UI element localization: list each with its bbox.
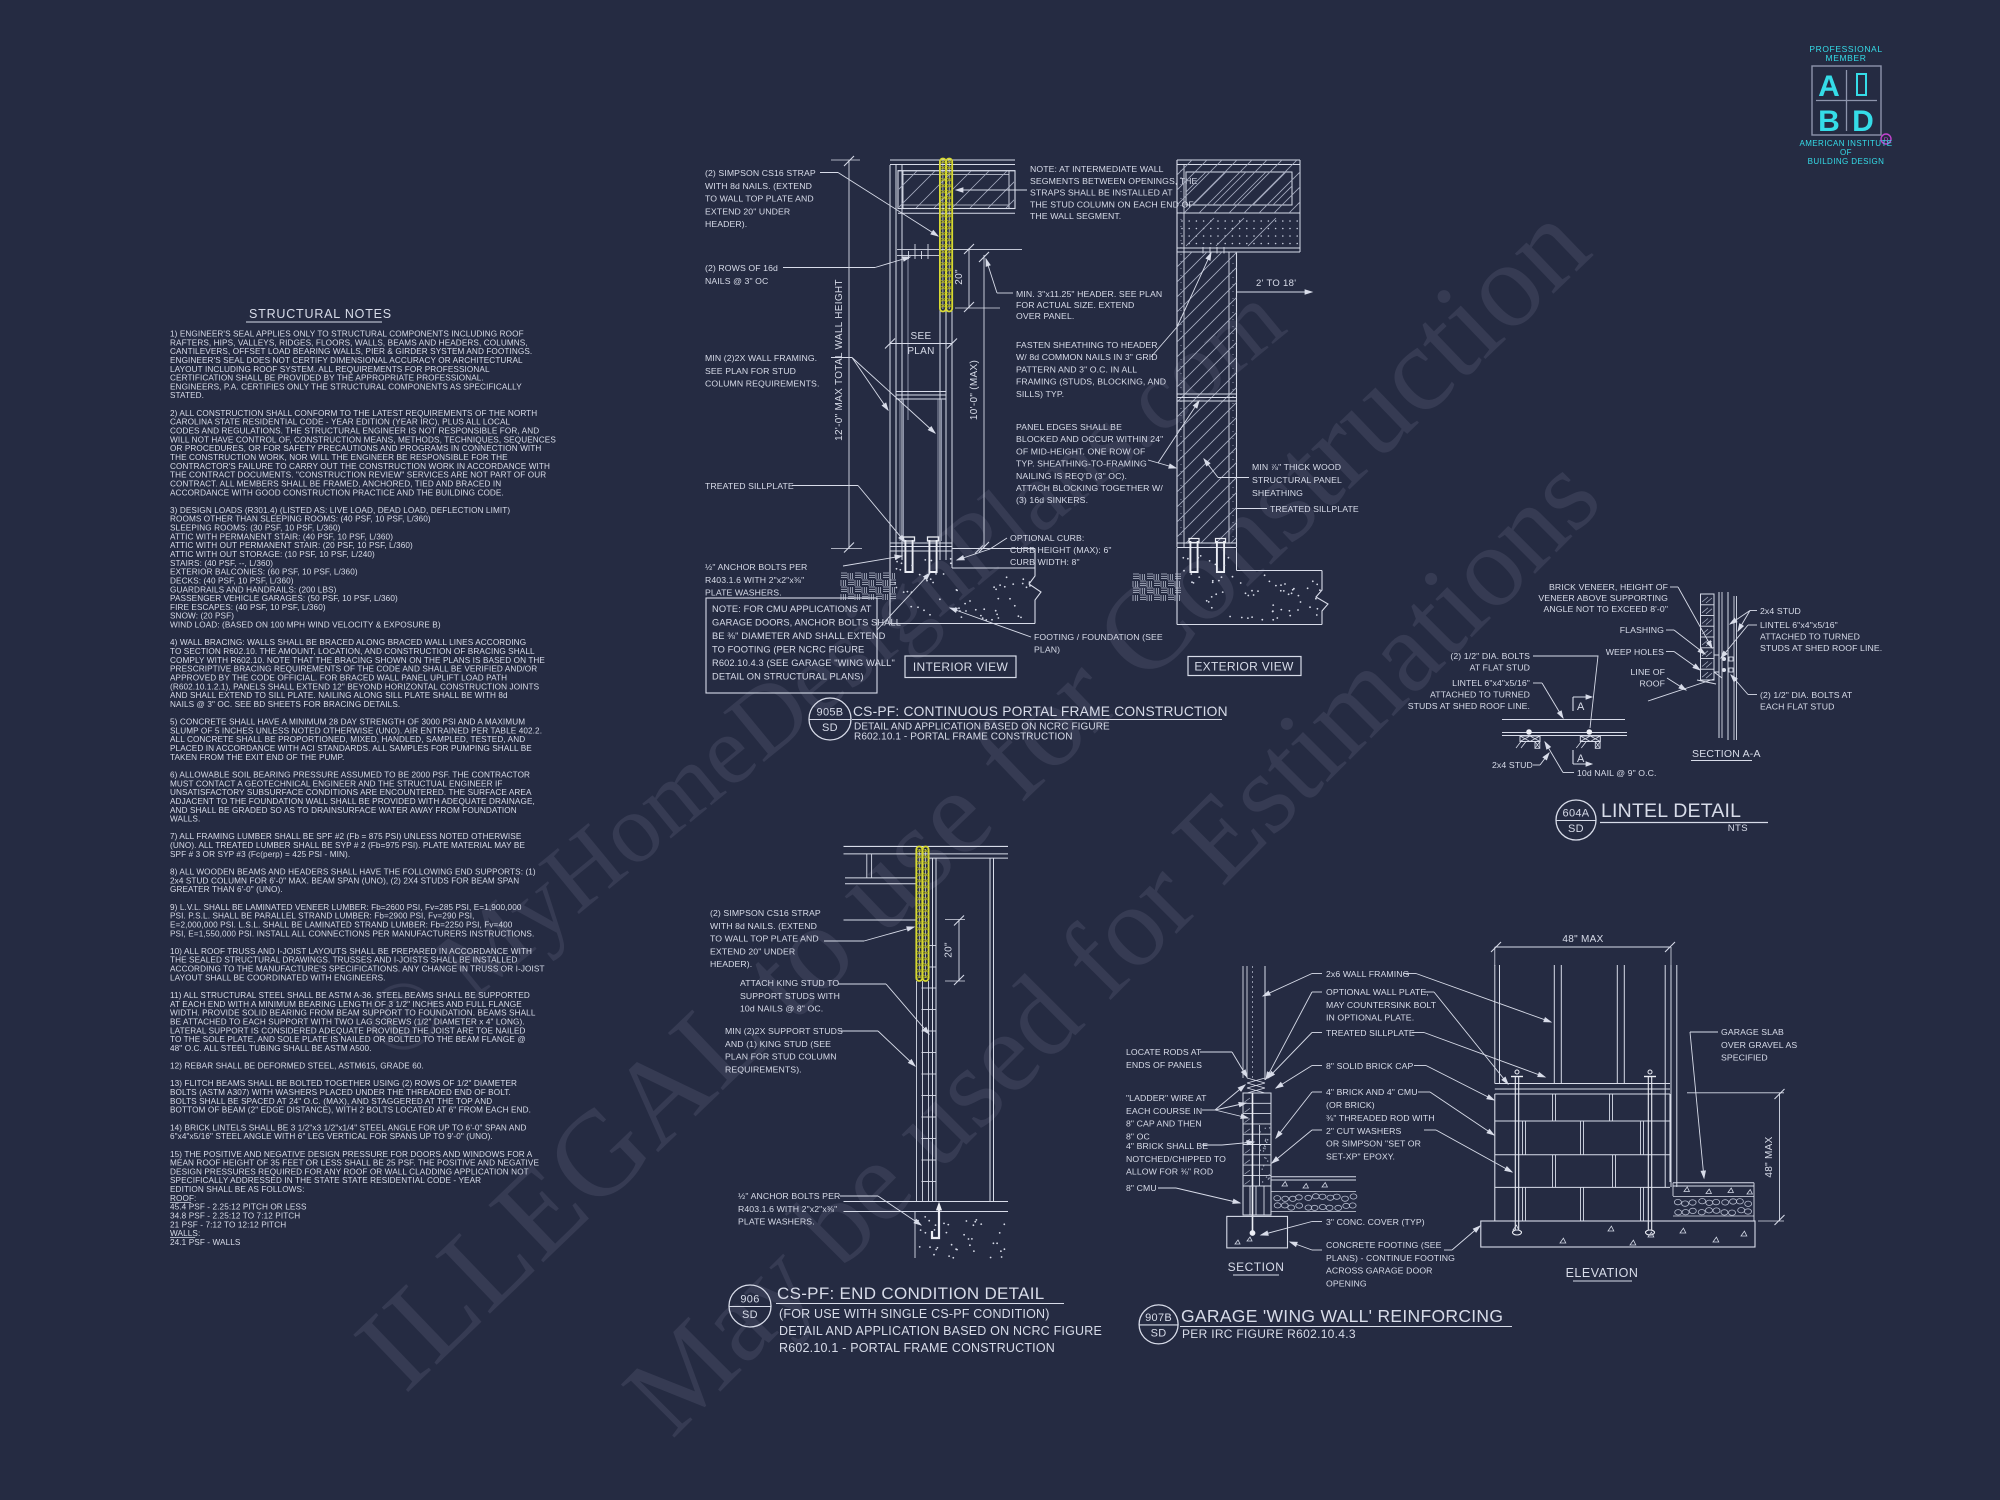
- svg-text:SD: SD: [1151, 1327, 1167, 1339]
- svg-text:MIN (2)2X SUPPORT STUDS: MIN (2)2X SUPPORT STUDS: [725, 1026, 843, 1036]
- svg-text:(R602.10.1.2.1), PANELS SHALL: (R602.10.1.2.1), PANELS SHALL EXTEND 12"…: [170, 682, 540, 691]
- svg-text:TREATED SILLPLATE: TREATED SILLPLATE: [705, 481, 794, 491]
- svg-text:LINE OF: LINE OF: [1631, 667, 1666, 677]
- svg-text:TO THE SOLE PLATE, AND SOLE PL: TO THE SOLE PLATE, AND SOLE PLATE IS NAI…: [170, 1035, 526, 1044]
- svg-text:MIN ⅞" THICK WOOD: MIN ⅞" THICK WOOD: [1252, 462, 1341, 472]
- svg-text:EXTERIOR VIEW: EXTERIOR VIEW: [1194, 660, 1294, 674]
- svg-text:VENEER ABOVE SUPPORTING: VENEER ABOVE SUPPORTING: [1538, 593, 1668, 603]
- svg-text:SD: SD: [822, 722, 838, 734]
- svg-text:LATERAL SUPPORT IS CONSIDERED: LATERAL SUPPORT IS CONSIDERED ADEQUATE P…: [170, 1026, 526, 1035]
- svg-text:2x4 STUD: 2x4 STUD: [1492, 760, 1533, 770]
- svg-text:(OR BRICK): (OR BRICK): [1326, 1100, 1375, 1110]
- svg-text:14) BRICK LINTELS SHALL BE 3 1: 14) BRICK LINTELS SHALL BE 3 1/2"x3 1/2"…: [170, 1123, 526, 1132]
- svg-text:ATTACHED TO TURNED: ATTACHED TO TURNED: [1430, 690, 1530, 700]
- svg-text:PER IRC FIGURE R602.10.4.3: PER IRC FIGURE R602.10.4.3: [1182, 1327, 1356, 1341]
- svg-text:ATTACHED TO TURNED: ATTACHED TO TURNED: [1760, 632, 1860, 642]
- svg-text:PLATE WASHERS.: PLATE WASHERS.: [705, 588, 782, 598]
- svg-text:PANEL EDGES SHALL BE: PANEL EDGES SHALL BE: [1016, 422, 1122, 432]
- svg-text:PRESCRIPTIVE BRACING REQUIREME: PRESCRIPTIVE BRACING REQUIREMENTS OF THE…: [170, 665, 537, 674]
- svg-text:THE WALL SEGMENT.: THE WALL SEGMENT.: [1030, 211, 1121, 221]
- svg-text:(FOR USE WITH SINGLE CS-PF CON: (FOR USE WITH SINGLE CS-PF CONDITION): [779, 1307, 1050, 1321]
- svg-text:GARAGE SLAB: GARAGE SLAB: [1721, 1027, 1784, 1037]
- svg-text:ENDS OF PANELS: ENDS OF PANELS: [1126, 1060, 1202, 1070]
- svg-text:TO FOOTING (PER NCRC FIGURE: TO FOOTING (PER NCRC FIGURE: [712, 645, 864, 655]
- svg-text:OR PROCEDURES, OR FOR SAFETY P: OR PROCEDURES, OR FOR SAFETY PRECAUTIONS…: [170, 444, 541, 453]
- svg-text:GARAGE 'WING WALL' REINFORCING: GARAGE 'WING WALL' REINFORCING: [1181, 1306, 1503, 1326]
- svg-text:604A: 604A: [1563, 808, 1590, 820]
- svg-text:FIRE ESCAPES: (40 PSF, 10 PSF,: FIRE ESCAPES: (40 PSF, 10 PSF, L/360): [170, 603, 326, 612]
- svg-text:WILL NOT HAVE CONTROL OF, CONS: WILL NOT HAVE CONTROL OF, CONSTRUCTION M…: [170, 435, 556, 444]
- svg-text:OF: OF: [1840, 148, 1852, 157]
- svg-text:SD: SD: [742, 1309, 758, 1321]
- svg-text:ACROSS GARAGE DOOR: ACROSS GARAGE DOOR: [1326, 1266, 1433, 1276]
- svg-text:STUDS AT SHED ROOF LINE.: STUDS AT SHED ROOF LINE.: [1760, 643, 1882, 653]
- svg-text:20": 20": [954, 269, 965, 285]
- svg-text:2" CUT WASHERS: 2" CUT WASHERS: [1326, 1126, 1402, 1136]
- svg-text:11) ALL STRUCTURAL STEEL SHALL: 11) ALL STRUCTURAL STEEL SHALL BE ASTM A…: [170, 991, 530, 1000]
- svg-text:NTS: NTS: [1728, 823, 1748, 834]
- svg-text:STRAPS SHALL BE INSTALLED AT: STRAPS SHALL BE INSTALLED AT: [1030, 188, 1173, 198]
- svg-text:MAY COUNTERSINK BOLT: MAY COUNTERSINK BOLT: [1326, 1000, 1437, 1010]
- svg-text:CURB HEIGHT (MAX): 6": CURB HEIGHT (MAX): 6": [1010, 545, 1112, 555]
- svg-text:8" SOLID BRICK CAP: 8" SOLID BRICK CAP: [1326, 1061, 1414, 1071]
- svg-text:SLUMP OF 5 INCHES UNLESS NOTED: SLUMP OF 5 INCHES UNLESS NOTED OTHERWISE…: [170, 726, 542, 735]
- svg-text:PLANS) - CONTINUE FOOTING: PLANS) - CONTINUE FOOTING: [1326, 1253, 1455, 1263]
- svg-text:12) REBAR SHALL BE DEFORMED ST: 12) REBAR SHALL BE DEFORMED STEEL, ASTM6…: [170, 1062, 424, 1071]
- svg-text:½" ANCHOR BOLTS PER: ½" ANCHOR BOLTS PER: [705, 562, 807, 572]
- svg-text:PLACED IN ACCORDANCE WITH ACI: PLACED IN ACCORDANCE WITH ACI STANDARDS.…: [170, 744, 532, 753]
- svg-text:2) ALL CONSTRUCTION SHALL CONF: 2) ALL CONSTRUCTION SHALL CONFORM TO THE…: [170, 409, 537, 418]
- svg-text:WITH 8d NAILS. (EXTEND: WITH 8d NAILS. (EXTEND: [710, 921, 817, 931]
- svg-text:ATTIC WITH OUT STORAGE: (10 PS: ATTIC WITH OUT STORAGE: (10 PSF, 10 PSF,…: [170, 550, 375, 559]
- svg-text:SPECIFICALLY ADDRESSED IN THE: SPECIFICALLY ADDRESSED IN THE STATE STAT…: [170, 1176, 481, 1185]
- svg-text:ATTACH BLOCKING TOGETHER W/: ATTACH BLOCKING TOGETHER W/: [1016, 483, 1163, 493]
- svg-text:8" CAP AND THEN: 8" CAP AND THEN: [1126, 1119, 1202, 1129]
- svg-text:TREATED SILLPLATE: TREATED SILLPLATE: [1270, 504, 1359, 514]
- svg-text:WITH 8d NAILS. (EXTEND: WITH 8d NAILS. (EXTEND: [705, 181, 812, 191]
- svg-text:DETAIL AND APPLICATION BASED O: DETAIL AND APPLICATION BASED ON NCRC FIG…: [779, 1324, 1102, 1338]
- svg-text:TO SECTION R602.10. THE AMOUNT: TO SECTION R602.10. THE AMOUNT, LOCATION…: [170, 647, 535, 656]
- svg-text:WALLS:: WALLS:: [170, 1229, 200, 1238]
- svg-text:SNOW: (20 PSF): SNOW: (20 PSF): [170, 612, 234, 621]
- svg-text:10d NAIL @ 9" O.C.: 10d NAIL @ 9" O.C.: [1577, 768, 1657, 778]
- svg-text:STAIRS: (40 PSF, --, L/360): STAIRS: (40 PSF, --, L/360): [170, 559, 273, 568]
- svg-text:ENGINEERS, P.A. CERTIFIES ONLY: ENGINEERS, P.A. CERTIFIES ONLY THE STRUC…: [170, 382, 522, 391]
- svg-text:BUILDING DESIGN: BUILDING DESIGN: [1808, 157, 1885, 166]
- svg-text:SPECIFIED: SPECIFIED: [1721, 1053, 1768, 1063]
- svg-text:B: B: [1818, 105, 1840, 138]
- svg-text:ALL CONCRETE SHALL BE PROPORTI: ALL CONCRETE SHALL BE PROPORTIONED, MIXE…: [170, 735, 525, 744]
- svg-text:DETAIL ON STRUCTURAL PLANS): DETAIL ON STRUCTURAL PLANS): [712, 672, 864, 682]
- svg-text:SLEEPING ROOMS: (30 PSF, 10 PS: SLEEPING ROOMS: (30 PSF, 10 PSF, L/360): [170, 524, 341, 533]
- svg-text:48" MAX: 48" MAX: [1764, 1136, 1775, 1177]
- svg-text:DECKS: (40 PSF, 10 PSF, L/360): DECKS: (40 PSF, 10 PSF, L/360): [170, 577, 294, 586]
- svg-text:COLUMN REQUIREMENTS.: COLUMN REQUIREMENTS.: [705, 379, 819, 389]
- svg-text:OVER GRAVEL AS: OVER GRAVEL AS: [1721, 1040, 1797, 1050]
- svg-text:3) DESIGN LOADS (R301.4) (LIST: 3) DESIGN LOADS (R301.4) (LISTED AS: LIV…: [170, 506, 510, 515]
- svg-text:PASSENGER VEHICLE GARAGES: (50: PASSENGER VEHICLE GARAGES: (50 PSF, 10 P…: [170, 594, 398, 603]
- svg-text:34.8 PSF - 2.25:12 TO 7:12 PIT: 34.8 PSF - 2.25:12 TO 7:12 PITCH: [170, 1212, 300, 1221]
- svg-text:PSI. P.S.L. SHALL BE PARALLEL: PSI. P.S.L. SHALL BE PARALLEL STRAND LUM…: [170, 912, 475, 921]
- svg-text:CANTILEVERS, OFFSET LOAD BEARI: CANTILEVERS, OFFSET LOAD BEARING WALLS, …: [170, 347, 532, 356]
- svg-text:SD: SD: [1568, 823, 1584, 835]
- svg-text:ATTACH KING STUD TO: ATTACH KING STUD TO: [740, 978, 839, 988]
- svg-text:TO WALL TOP PLATE AND: TO WALL TOP PLATE AND: [710, 934, 819, 944]
- svg-text:6"x4"x5/16" STEEL ANGLE WITH 6: 6"x4"x5/16" STEEL ANGLE WITH 6" LEG VERT…: [170, 1132, 493, 1141]
- svg-text:12'-0" MAX TOTAL WALL HEIGHT: 12'-0" MAX TOTAL WALL HEIGHT: [834, 279, 845, 441]
- svg-text:OF MID-HEIGHT. ONE ROW OF: OF MID-HEIGHT. ONE ROW OF: [1016, 446, 1145, 456]
- svg-text:2x4 STUD COLUMN FOR 6'-0" MAX.: 2x4 STUD COLUMN FOR 6'-0" MAX. BEAM SPAN…: [170, 876, 519, 885]
- svg-text:½" ANCHOR BOLTS PER: ½" ANCHOR BOLTS PER: [738, 1191, 840, 1201]
- svg-text:907B: 907B: [1145, 1312, 1172, 1324]
- svg-text:AND SHALL EXTEND TO SILL PLATE: AND SHALL EXTEND TO SILL PLATE. NAILING …: [170, 691, 508, 700]
- svg-text:CONCRETE FOOTING (SEE: CONCRETE FOOTING (SEE: [1326, 1240, 1442, 1250]
- svg-text:ADJACENT TO THE FOUNDATION WAL: ADJACENT TO THE FOUNDATION WALL SHALL BE…: [170, 797, 535, 806]
- svg-text:ROOF:: ROOF:: [170, 1194, 196, 1203]
- svg-text:"LADDER" WIRE AT: "LADDER" WIRE AT: [1126, 1093, 1207, 1103]
- svg-text:4" BRICK SHALL BE: 4" BRICK SHALL BE: [1126, 1141, 1208, 1151]
- svg-text:AT EACH END WITH A MINIMUM BEA: AT EACH END WITH A MINIMUM BEARING LENGT…: [170, 1000, 522, 1009]
- svg-text:R602.10.1 - PORTAL FRAME CONST: R602.10.1 - PORTAL FRAME CONSTRUCTION: [779, 1341, 1055, 1355]
- svg-text:8" CMU: 8" CMU: [1126, 1183, 1157, 1193]
- svg-text:5) CONCRETE SHALL HAVE A MINIM: 5) CONCRETE SHALL HAVE A MINIMUM 28 DAY …: [170, 718, 525, 727]
- svg-text:CS-PF: END CONDITION DETAIL: CS-PF: END CONDITION DETAIL: [777, 1284, 1045, 1303]
- svg-text:48" MAX: 48" MAX: [1562, 934, 1603, 945]
- svg-text:STATED.: STATED.: [170, 391, 204, 400]
- svg-text:EACH FLAT STUD: EACH FLAT STUD: [1760, 702, 1834, 712]
- svg-text:⅜" THREADED ROD WITH: ⅜" THREADED ROD WITH: [1326, 1113, 1435, 1123]
- svg-text:STUDS AT SHED ROOF LINE.: STUDS AT SHED ROOF LINE.: [1408, 701, 1530, 711]
- svg-text:LINTEL 6"x4"x5/16": LINTEL 6"x4"x5/16": [1452, 678, 1530, 688]
- svg-text:ROOMS OTHER THAN SLEEPING ROOM: ROOMS OTHER THAN SLEEPING ROOMS: (40 PSF…: [170, 515, 431, 524]
- svg-text:SECTION A-A: SECTION A-A: [1692, 748, 1761, 760]
- svg-text:CAROLINA STATE RESIDENTIAL COD: CAROLINA STATE RESIDENTIAL CODE - YEAR E…: [170, 418, 511, 427]
- svg-text:CODES AND REGULATIONS. THE STR: CODES AND REGULATIONS. THE STRUCTURAL EN…: [170, 427, 539, 436]
- svg-text:8) ALL WOODEN BEAMS AND HEADER: 8) ALL WOODEN BEAMS AND HEADERS SHALL HA…: [170, 868, 536, 877]
- svg-text:SUPPORT STUDS WITH: SUPPORT STUDS WITH: [740, 991, 840, 1001]
- svg-text:REQUIREMENTS).: REQUIREMENTS).: [725, 1064, 802, 1074]
- svg-text:20": 20": [944, 942, 955, 958]
- svg-text:AT FLAT STUD: AT FLAT STUD: [1470, 663, 1530, 673]
- svg-text:LINTEL DETAIL: LINTEL DETAIL: [1601, 800, 1741, 822]
- svg-text:SEGMENTS BETWEEN OPENINGS, THE: SEGMENTS BETWEEN OPENINGS, THE: [1030, 176, 1198, 186]
- svg-text:OR SIMPSON "SET OR: OR SIMPSON "SET OR: [1326, 1139, 1421, 1149]
- svg-text:(3) 16d SINKERS.: (3) 16d SINKERS.: [1016, 495, 1088, 505]
- svg-text:PLAN): PLAN): [1034, 645, 1060, 655]
- svg-text:PSI, E=1,550,000 PSI. INSTALL: PSI, E=1,550,000 PSI. INSTALL ALL CONNEC…: [170, 929, 534, 938]
- svg-text:MIN. 3"x11.25" HEADER. SEE PLA: MIN. 3"x11.25" HEADER. SEE PLAN: [1016, 289, 1162, 299]
- svg-text:CURB WIDTH: 8": CURB WIDTH: 8": [1010, 557, 1080, 567]
- svg-text:NOTE: AT INTERMEDIATE WALL: NOTE: AT INTERMEDIATE WALL: [1030, 164, 1164, 174]
- svg-text:NAILS @ 3" OC. SEE BD SHEETS F: NAILS @ 3" OC. SEE BD SHEETS FOR BRACING…: [170, 700, 400, 709]
- svg-text:OVER PANEL.: OVER PANEL.: [1016, 311, 1074, 321]
- svg-text:ACCORDING TO THE MANUFACTURE'S: ACCORDING TO THE MANUFACTURE'S SPECIFICA…: [170, 965, 545, 974]
- svg-text:R403.1.6 WITH 2"x2"x⅜": R403.1.6 WITH 2"x2"x⅜": [705, 575, 804, 585]
- svg-text:SILLS) TYP.: SILLS) TYP.: [1016, 389, 1064, 399]
- svg-text:IN OPTIONAL PLATE.: IN OPTIONAL PLATE.: [1326, 1013, 1414, 1023]
- svg-text:(UNO). ALL TREATED LUMBER SHAL: (UNO). ALL TREATED LUMBER SHALL BE SYP #…: [170, 841, 525, 850]
- svg-text:(2) 1/2" DIA. BOLTS AT: (2) 1/2" DIA. BOLTS AT: [1760, 690, 1853, 700]
- svg-text:9) L.V.L. SHALL BE LAMINATED: 9) L.V.L. SHALL BE LAMINATED VENEER LUMB…: [170, 903, 522, 912]
- svg-text:FOOTING / FOUNDATION (SEE: FOOTING / FOUNDATION (SEE: [1034, 632, 1163, 642]
- svg-text:EXTEND 20" UNDER: EXTEND 20" UNDER: [710, 946, 795, 956]
- svg-text:(2) ROWS OF 16d: (2) ROWS OF 16d: [705, 263, 778, 273]
- svg-text:4) WALL BRACING: WALLS SHALL: 4) WALL BRACING: WALLS SHALL BE BRACED A…: [170, 638, 526, 647]
- svg-text:1) ENGINEER'S SEAL APPLIES ONL: 1) ENGINEER'S SEAL APPLIES ONLY TO STRUC…: [170, 330, 524, 339]
- svg-text:R403.1.6 WITH 2"x2"x⅜": R403.1.6 WITH 2"x2"x⅜": [738, 1204, 837, 1214]
- svg-text:15) THE POSITIVE AND NEGATIVE: 15) THE POSITIVE AND NEGATIVE DESIGN PRE…: [170, 1150, 533, 1159]
- svg-text:FASTEN SHEATHING TO HEADER: FASTEN SHEATHING TO HEADER: [1016, 340, 1158, 350]
- svg-text:LINTEL 6"x4"x5/16": LINTEL 6"x4"x5/16": [1760, 620, 1838, 630]
- svg-text:WIND LOAD: (BASED ON 100 MPH W: WIND LOAD: (BASED ON 100 MPH WIND VELOCI…: [170, 621, 441, 630]
- svg-text:NAILING IS REQ'D (3" OC).: NAILING IS REQ'D (3" OC).: [1016, 471, 1127, 481]
- svg-text:OPENING: OPENING: [1326, 1278, 1367, 1288]
- svg-text:NAILS @ 3" OC: NAILS @ 3" OC: [705, 276, 768, 286]
- svg-text:PLAN FOR STUD COLUMN: PLAN FOR STUD COLUMN: [725, 1052, 837, 1062]
- svg-text:CERTIFICATION SHALL BE PROVIDE: CERTIFICATION SHALL BE PROVIDED BY THE A…: [170, 374, 484, 383]
- svg-text:24.1 PSF - WALLS: 24.1 PSF - WALLS: [170, 1238, 241, 1247]
- svg-text:STRUCTURAL PANEL: STRUCTURAL PANEL: [1252, 475, 1342, 485]
- svg-text:THE STUD COLUMN ON EACH END OF: THE STUD COLUMN ON EACH END OF: [1030, 199, 1194, 209]
- svg-text:CONTRACTOR'S FAILURE TO CARRY: CONTRACTOR'S FAILURE TO CARRY OUT THE CO…: [170, 462, 550, 471]
- svg-text:BLOCKED AND OCCUR WITHIN 24": BLOCKED AND OCCUR WITHIN 24": [1016, 434, 1163, 444]
- svg-text:45.4 PSF - 2.25:12 PITCH OR LE: 45.4 PSF - 2.25:12 PITCH OR LESS: [170, 1203, 307, 1212]
- svg-text:48" O.C. ALL STEEL TUBING SHAL: 48" O.C. ALL STEEL TUBING SHALL BE ASTM …: [170, 1044, 372, 1053]
- svg-text:ELEVATION: ELEVATION: [1566, 1266, 1639, 1280]
- svg-text:LAYOUT SHALL BE COORDINATED WI: LAYOUT SHALL BE COORDINATED WITH ENGINEE…: [170, 973, 386, 982]
- svg-text:GUARDRAILS AND HANDRAILS: (200: GUARDRAILS AND HANDRAILS: (200 LBS): [170, 585, 337, 594]
- svg-text:DESIGN PRESSURES REQUIRED FOR: DESIGN PRESSURES REQUIRED FOR ANY ROOF O…: [170, 1167, 529, 1176]
- svg-text:ALLOW FOR ⅜" ROD: ALLOW FOR ⅜" ROD: [1126, 1167, 1213, 1177]
- svg-text:THE CONTRACT DOCUMENTS. "CONST: THE CONTRACT DOCUMENTS. "CONSTRUCTION RE…: [170, 471, 546, 480]
- svg-text:(2) SIMPSON CS16 STRAP: (2) SIMPSON CS16 STRAP: [710, 908, 821, 918]
- svg-text:COMPLY WITH R602.10. NOTE THAT: COMPLY WITH R602.10. NOTE THAT THE BRACI…: [170, 656, 545, 665]
- svg-text:3" CONC. COVER (TYP): 3" CONC. COVER (TYP): [1326, 1217, 1425, 1227]
- svg-text:EXTERIOR BALCONIES: (60 PSF, 1: EXTERIOR BALCONIES: (60 PSF, 10 PSF, L/3…: [170, 568, 358, 577]
- svg-text:APPROVED BY THE CODE OFFICIAL.: APPROVED BY THE CODE OFFICIAL. FOR BRACE…: [170, 674, 507, 683]
- svg-text:AND (1) KING STUD (SEE: AND (1) KING STUD (SEE: [725, 1039, 831, 1049]
- svg-text:BE ⅜" DIAMETER AND SHALL EXTEN: BE ⅜" DIAMETER AND SHALL EXTEND: [712, 631, 886, 641]
- svg-text:GREATER THAN 6'-0" (UNO).: GREATER THAN 6'-0" (UNO).: [170, 885, 283, 894]
- svg-text:6) ALLOWABLE SOIL BEARING PRES: 6) ALLOWABLE SOIL BEARING PRESSURE ASSUM…: [170, 771, 530, 780]
- svg-text:SET-XP" EPOXY.: SET-XP" EPOXY.: [1326, 1151, 1395, 1161]
- svg-text:906: 906: [740, 1294, 759, 1306]
- svg-text:TAKEN FROM THE EXIT END OF THE: TAKEN FROM THE EXIT END OF THE PUMP.: [170, 753, 344, 762]
- svg-text:R602.10.1 - PORTAL FRAME CONST: R602.10.1 - PORTAL FRAME CONSTRUCTION: [854, 732, 1073, 743]
- svg-text:ACCORDANCE WITH GOOD CONSTRUCT: ACCORDANCE WITH GOOD CONSTRUCTION PRACTI…: [170, 488, 504, 497]
- svg-text:2x4 STUD: 2x4 STUD: [1760, 606, 1801, 616]
- svg-text:RAFTERS, HIPS, VALLEYS, RIDGES: RAFTERS, HIPS, VALLEYS, RIDGES, FLOORS, …: [170, 338, 528, 347]
- svg-text:UNSATISFACTORY SUBSURFACE COND: UNSATISFACTORY SUBSURFACE CONDITIONS ARE…: [170, 788, 532, 797]
- svg-text:(2) SIMPSON CS16 STRAP: (2) SIMPSON CS16 STRAP: [705, 168, 816, 178]
- svg-text:THE SEALED STRUCTURAL DRAWINGS: THE SEALED STRUCTURAL DRAWINGS. TRUSSES …: [170, 956, 518, 965]
- svg-text:THE CONSTRUCTION WORK, NOR WIL: THE CONSTRUCTION WORK, NOR WILL THE ENGI…: [170, 453, 508, 462]
- svg-text:10) ALL ROOF TRUSS AND I-JOIST: 10) ALL ROOF TRUSS AND I-JOIST LAYOUTS S…: [170, 947, 532, 956]
- svg-text:EXTEND 20" UNDER: EXTEND 20" UNDER: [705, 206, 790, 216]
- svg-text:4" BRICK AND 4" CMU: 4" BRICK AND 4" CMU: [1326, 1087, 1418, 1097]
- svg-text:ROOF: ROOF: [1640, 679, 1666, 689]
- svg-text:905B: 905B: [817, 707, 844, 719]
- svg-text:ATTIC WITH OUT PERMANENT STAIR: ATTIC WITH OUT PERMANENT STAIR: (20 PSF,…: [170, 541, 413, 550]
- svg-text:ATTIC WITH PERMANENT STAIR: (4: ATTIC WITH PERMANENT STAIR: (40 PSF, 10 …: [170, 532, 393, 541]
- svg-text:CONTRACT. ALL MEMBERS SHALL BE: CONTRACT. ALL MEMBERS SHALL BE FRAMED, A…: [170, 479, 501, 488]
- svg-text:FOR ACTUAL SIZE. EXTEND: FOR ACTUAL SIZE. EXTEND: [1016, 300, 1134, 310]
- svg-text:A: A: [1577, 701, 1585, 713]
- svg-text:WALLS.: WALLS.: [170, 815, 200, 824]
- svg-text:BOLTS (ASTM A307) WITH WASHERS: BOLTS (ASTM A307) WITH WASHERS PLACED UN…: [170, 1088, 511, 1097]
- svg-text:NOTE: FOR CMU APPLICATIONS AT: NOTE: FOR CMU APPLICATIONS AT: [712, 604, 872, 614]
- svg-text:GARAGE DOORS, ANCHOR BOLTS SHA: GARAGE DOORS, ANCHOR BOLTS SHALL: [712, 618, 901, 628]
- svg-text:OPTIONAL CURB:: OPTIONAL CURB:: [1010, 533, 1084, 543]
- svg-text:SPF # 3 OR SYP #3 (Fc(perp) =: SPF # 3 OR SYP #3 (Fc(perp) = 425 PSI - …: [170, 850, 350, 859]
- svg-text:EDITION SHALL BE AS FOLLOWS:: EDITION SHALL BE AS FOLLOWS:: [170, 1185, 304, 1194]
- svg-text:10d NAILS @ 8" OC.: 10d NAILS @ 8" OC.: [740, 1004, 823, 1014]
- svg-text:PLAN: PLAN: [907, 346, 934, 357]
- svg-text:R602.10.4.3 (SEE GARAGE "WING: R602.10.4.3 (SEE GARAGE "WING WALL": [712, 658, 895, 668]
- svg-text:SEE PLAN FOR STUD: SEE PLAN FOR STUD: [705, 366, 796, 376]
- svg-text:AND SHALL BE GRADED SO AS TO D: AND SHALL BE GRADED SO AS TO DRAINSURFAC…: [170, 806, 517, 815]
- svg-text:8" OC: 8" OC: [1126, 1131, 1150, 1141]
- svg-text:BE ATTACHED TO EACH SUPPORT WI: BE ATTACHED TO EACH SUPPORT WITH TWO LAG…: [170, 1018, 525, 1027]
- svg-text:WIDTH. PROVIDE SOLID BEARING F: WIDTH. PROVIDE SOLID BEARING FROM BEAM S…: [170, 1009, 536, 1018]
- svg-text:CS-PF: CONTINUOUS PORTAL FRAME: CS-PF: CONTINUOUS PORTAL FRAME CONSTRUCT…: [853, 704, 1228, 719]
- svg-text:PLATE WASHERS.: PLATE WASHERS.: [738, 1217, 815, 1227]
- svg-text:7) ALL FRAMING LUMBER SHALL BE: 7) ALL FRAMING LUMBER SHALL BE SPF #2 (F…: [170, 832, 522, 841]
- svg-text:TYP. SHEATHING-TO-FRAMING: TYP. SHEATHING-TO-FRAMING: [1016, 459, 1147, 469]
- svg-text:TREATED SILLPLATE: TREATED SILLPLATE: [1326, 1028, 1415, 1038]
- svg-text:W/ 8d COMMON NAILS IN 3" GRID: W/ 8d COMMON NAILS IN 3" GRID: [1016, 352, 1158, 362]
- svg-text:2' TO 18': 2' TO 18': [1256, 278, 1296, 289]
- svg-text:2x6 WALL FRAMING: 2x6 WALL FRAMING: [1326, 969, 1410, 979]
- svg-text:AMERICAN INSTITUTE: AMERICAN INSTITUTE: [1800, 139, 1893, 148]
- svg-text:HEADER).: HEADER).: [705, 219, 747, 229]
- svg-text:INTERIOR VIEW: INTERIOR VIEW: [913, 660, 1009, 674]
- svg-text:PATTERN AND 3" O.C. IN ALL: PATTERN AND 3" O.C. IN ALL: [1016, 364, 1137, 374]
- svg-text:HEADER).: HEADER).: [710, 959, 752, 969]
- svg-text:FLASHING: FLASHING: [1620, 625, 1664, 635]
- svg-text:BOLTS SHALL BE SPACED AT 24" O: BOLTS SHALL BE SPACED AT 24" O.C. (MAX),…: [170, 1097, 492, 1106]
- svg-text:13) FLITCH BEAMS SHALL BE BOLT: 13) FLITCH BEAMS SHALL BE BOLTED TOGETHE…: [170, 1079, 517, 1088]
- svg-text:NOTCHED/CHIPPED TO: NOTCHED/CHIPPED TO: [1126, 1154, 1226, 1164]
- svg-text:21 PSF - 7:12 TO 12:12 PITCH: 21 PSF - 7:12 TO 12:12 PITCH: [170, 1220, 286, 1229]
- svg-text:MEAN ROOF HEIGHT OF 35 FEET OR: MEAN ROOF HEIGHT OF 35 FEET OR LESS SHAL…: [170, 1159, 539, 1168]
- svg-text:SEE: SEE: [911, 331, 932, 342]
- svg-text:D: D: [1852, 105, 1874, 138]
- svg-text:BRICK VENEER, HEIGHT OF: BRICK VENEER, HEIGHT OF: [1549, 582, 1668, 592]
- svg-text:BOTTOM OF BEAM (2" EDGE DISTAN: BOTTOM OF BEAM (2" EDGE DISTANCE), WITH …: [170, 1106, 531, 1115]
- svg-text:ENGINEER'S SEAL DOES NOT CERTI: ENGINEER'S SEAL DOES NOT CERTIFY DIMENSI…: [170, 356, 523, 365]
- svg-text:A: A: [1818, 70, 1840, 103]
- svg-text:SECTION: SECTION: [1228, 1260, 1285, 1274]
- svg-text:TO WALL TOP PLATE AND: TO WALL TOP PLATE AND: [705, 194, 814, 204]
- svg-text:OPTIONAL WALL PLATE,: OPTIONAL WALL PLATE,: [1326, 987, 1429, 997]
- svg-text:MUST CONTACT A GEOTECHNICAL EN: MUST CONTACT A GEOTECHNICAL ENGINEER AND…: [170, 779, 502, 788]
- svg-text:FRAMING (STUDS, BLOCKING, AND: FRAMING (STUDS, BLOCKING, AND: [1016, 377, 1166, 387]
- svg-text:MEMBER: MEMBER: [1826, 53, 1867, 63]
- svg-text:E=2,000,000 PSI. L.S.L. SHALL: E=2,000,000 PSI. L.S.L. SHALL BE LAMINAT…: [170, 920, 513, 929]
- svg-text:LOCATE RODS AT: LOCATE RODS AT: [1126, 1047, 1202, 1057]
- svg-text:EACH COURSE IN: EACH COURSE IN: [1126, 1106, 1202, 1116]
- svg-text:10'-0" (MAX): 10'-0" (MAX): [969, 360, 980, 420]
- svg-text:MIN (2)2X WALL FRAMING.: MIN (2)2X WALL FRAMING.: [705, 353, 817, 363]
- svg-text:A: A: [1577, 753, 1585, 765]
- svg-text:LAYOUT INCLUDING ROOF SYSTEM.: LAYOUT INCLUDING ROOF SYSTEM. ALL REQUIR…: [170, 365, 490, 374]
- svg-text:WEEP HOLES: WEEP HOLES: [1606, 647, 1664, 657]
- svg-text:(2) 1/2" DIA. BOLTS: (2) 1/2" DIA. BOLTS: [1450, 651, 1530, 661]
- svg-text:STRUCTURAL NOTES: STRUCTURAL NOTES: [249, 307, 392, 321]
- svg-text:ANGLE NOT TO EXCEED 8'-0": ANGLE NOT TO EXCEED 8'-0": [1543, 604, 1668, 614]
- svg-text:SHEATHING: SHEATHING: [1252, 488, 1303, 498]
